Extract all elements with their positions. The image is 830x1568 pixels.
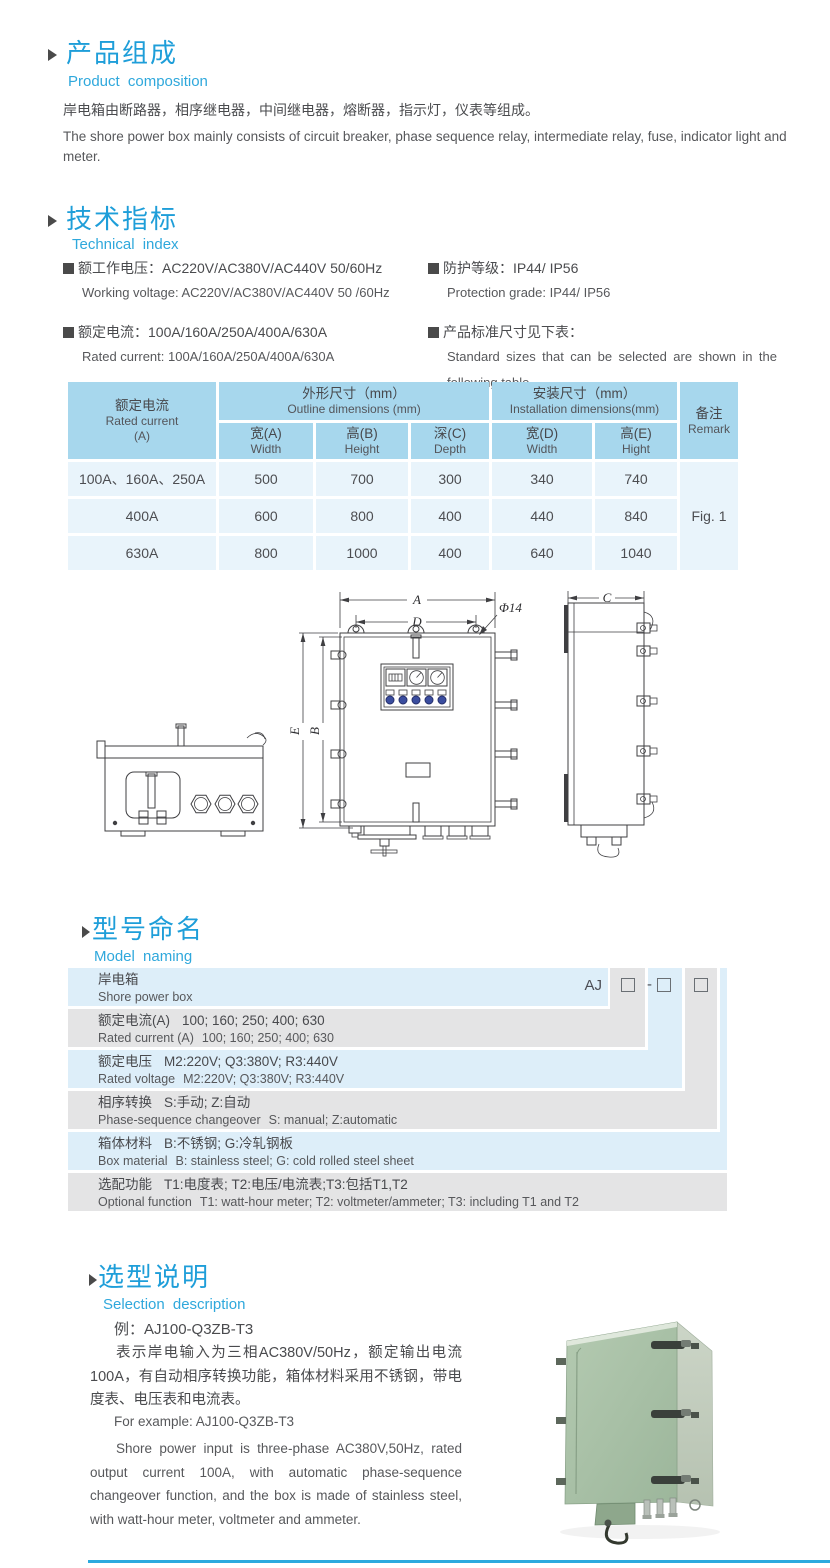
header-remark: 备注 Remark: [680, 382, 738, 459]
model-code-box: [694, 978, 708, 992]
page-bottom-rule: [88, 1560, 830, 1563]
product-composition-body-en: The shore power box mainly consists of c…: [63, 127, 803, 167]
bullet-square-icon: [428, 263, 439, 274]
subheader-width-a: 宽(A) Width: [219, 423, 313, 459]
spec-protection-grade: 防护等级：IP44/ IP56 Protection grade: IP44/ …: [428, 259, 773, 306]
product-composition-title-zh: 产品组成: [66, 38, 178, 68]
spec-en-text: Rated current: 100A/160A/250A/400A/630A: [82, 344, 421, 370]
naming-row-current: 额定电流(A)100; 160; 250; 400; 630 Rated cur…: [68, 1009, 645, 1047]
naming-row-optional: 选配功能T1:电度表; T2:电压/电流表;T3:包括T1,T2 Optiona…: [68, 1173, 727, 1211]
spec-en-text: Working voltage: AC220V/AC380V/AC440V 50…: [82, 280, 421, 306]
spec-zh-text: 额工作电压：AC220V/AC380V/AC440V 50/60Hz: [78, 259, 382, 277]
table-row: 630A 800 1000 400 640 1040: [68, 536, 738, 570]
subheader-width-d: 宽(D) Width: [492, 423, 592, 459]
bullet-square-icon: [63, 327, 74, 338]
selection-title-en: Selection description: [103, 1296, 245, 1313]
dim-label-b: B: [307, 727, 322, 735]
section-arrow-icon: [48, 215, 57, 227]
table-row: 100A、160A、250A 500 700 300 340 740 Fig. …: [68, 462, 738, 496]
bullet-square-icon: [428, 327, 439, 338]
door-latches-right: [495, 650, 517, 809]
spec-en-text: Protection grade: IP44/ IP56: [447, 280, 773, 306]
side-latches: [637, 623, 657, 804]
spec-list-left: 额工作电压：AC220V/AC380V/AC440V 50/60Hz Worki…: [63, 259, 421, 387]
naming-row-phase: 相序转换S:手动; Z:自动 Phase-sequence changeover…: [68, 1091, 717, 1129]
selection-example-en: For example: AJ100-Q3ZB-T3: [114, 1414, 294, 1429]
section-arrow-icon: [48, 49, 57, 61]
product-photo: [545, 1294, 815, 1562]
side-bottom-hardware: [581, 825, 627, 857]
subheader-depth-c: 深(C) Depth: [411, 423, 489, 459]
bullet-square-icon: [63, 263, 74, 274]
section-arrow-icon: [82, 926, 90, 938]
selection-example-zh: 例：AJ100-Q3ZB-T3: [114, 1318, 253, 1339]
model-code-box: [621, 978, 635, 992]
product-composition-title-en: Product composition: [68, 73, 208, 90]
naming-row-material: 箱体材料B:不锈钢; G:冷轧钢板 Box materialB: stainle…: [68, 1132, 727, 1170]
model-code-dash: -: [647, 976, 652, 993]
selection-body-en: Shore power input is three-phase AC380V,…: [90, 1437, 462, 1531]
model-naming-diagram: 岸电箱 Shore power box 额定电流(A)100; 160; 250…: [68, 968, 727, 1213]
dim-label-e: E: [287, 727, 302, 736]
front-view-drawing: A D Φ14: [287, 592, 522, 856]
table-row: 400A 600 800 400 440 840: [68, 499, 738, 533]
spec-zh-text: 产品标准尺寸见下表：: [443, 323, 583, 341]
model-naming-title-en: Model naming: [94, 948, 192, 965]
indicator-lights: [386, 690, 446, 704]
section-arrow-icon: [89, 1274, 97, 1286]
spec-rated-current: 额定电流：100A/160A/250A/400A/630A Rated curr…: [63, 323, 421, 370]
selection-title-zh: 选型说明: [98, 1262, 210, 1292]
dimensions-table: 额定电流 Rated current (A) 外形尺寸（mm） Outline …: [65, 379, 741, 573]
product-composition-body-zh: 岸电箱由断路器，相序继电器，中间继电器，熔断器，指示灯，仪表等组成。: [63, 100, 783, 120]
bottom-bracket: [595, 1503, 635, 1525]
spec-working-voltage: 额工作电压：AC220V/AC380V/AC440V 50/60Hz Worki…: [63, 259, 421, 306]
hinges: [556, 1358, 566, 1485]
bottom-view-drawing: [97, 724, 266, 836]
dim-label-dia: Φ14: [499, 600, 522, 615]
spec-zh-text: 防护等级：IP44/ IP56: [443, 259, 578, 277]
model-naming-title-zh: 型号命名: [92, 914, 204, 944]
header-rated-current: 额定电流 Rated current (A): [68, 382, 216, 459]
model-code-box: [657, 978, 671, 992]
technical-drawing-figure: A D Φ14: [63, 578, 767, 908]
remark-cell: Fig. 1: [680, 462, 738, 570]
header-installation-dimensions: 安装尺寸（mm） Installation dimensions(mm): [492, 382, 677, 420]
dim-label-a: A: [412, 592, 421, 607]
selection-body-zh: 表示岸电输入为三相AC380V/50Hz，额定输出电流100A，有自动相序转换功…: [90, 1342, 462, 1413]
front-bottom-hardware: [349, 826, 490, 856]
side-view-drawing: C: [564, 590, 657, 857]
table-header-row: 额定电流 Rated current (A) 外形尺寸（mm） Outline …: [68, 382, 738, 420]
technical-index-title-en: Technical index: [72, 236, 179, 253]
subheader-height-b: 高(B) Height: [316, 423, 408, 459]
spec-zh-text: 额定电流：100A/160A/250A/400A/630A: [78, 323, 327, 341]
meter-panel-drawing: [381, 664, 453, 710]
subheader-height-e: 高(E) Hight: [595, 423, 677, 459]
naming-row-voltage: 额定电压M2:220V; Q3:380V; R3:440V Rated volt…: [68, 1050, 682, 1088]
model-code-prefix: AJ: [566, 977, 602, 994]
technical-index-title-zh: 技术指标: [66, 204, 178, 234]
header-outline-dimensions: 外形尺寸（mm） Outline dimensions (mm): [219, 382, 489, 420]
catalog-page: 产品组成 Product composition 岸电箱由断路器，相序继电器，中…: [0, 0, 830, 1568]
naming-row-product: 岸电箱 Shore power box: [68, 968, 608, 1006]
